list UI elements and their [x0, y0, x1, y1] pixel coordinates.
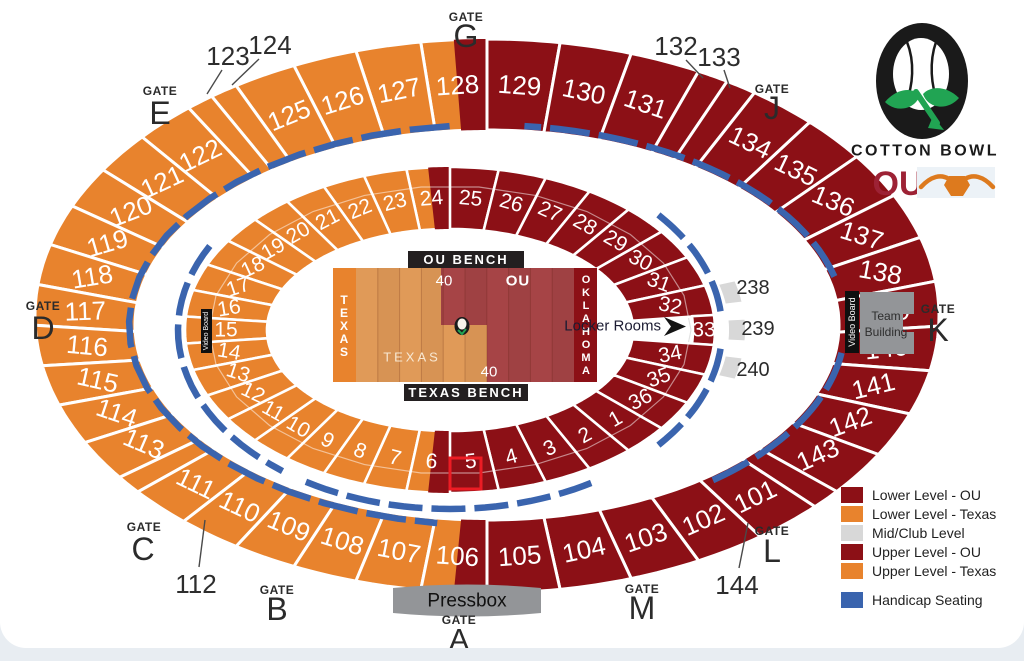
legend-label-3: Upper Level - OU	[872, 544, 981, 560]
section-label-33: 33	[692, 319, 715, 342]
legend-swatch-5	[841, 592, 863, 608]
section-label-106: 106	[435, 539, 480, 572]
section-label-5: 5	[464, 449, 478, 473]
section-label-6: 6	[425, 450, 439, 474]
locker-rooms-arrow-icon	[664, 317, 686, 336]
video-board-right-label: Video Board	[847, 297, 857, 346]
section-label-116: 116	[65, 329, 109, 363]
section-label-34: 34	[657, 341, 685, 368]
gate-J-letter: J	[764, 90, 780, 126]
gate-D-letter: D	[31, 310, 54, 346]
field-ou-label: OU	[506, 273, 531, 290]
gate-A-letter: A	[449, 624, 469, 649]
pressbox-label: Pressbox	[427, 591, 507, 612]
section-label-105: 105	[497, 539, 542, 572]
field-texas-label: TEXAS	[383, 350, 441, 365]
section-outside-label-144: 144	[715, 570, 758, 600]
section-outside-label-124: 124	[248, 30, 291, 60]
endzone-oklahoma-letter: A	[582, 365, 590, 377]
yard-40-top: 40	[436, 273, 453, 290]
legend-swatch-4	[841, 563, 863, 579]
legend-label-0: Lower Level - OU	[872, 487, 981, 503]
endzone-oklahoma-letter: O	[582, 274, 591, 286]
section-label-32: 32	[657, 292, 684, 319]
endzone-texas-letter: E	[340, 306, 348, 320]
cotton-bowl-title: COTTON BOWL	[851, 143, 999, 160]
ou-logo: OU	[873, 165, 924, 203]
legend-item-5: Handicap Seating	[841, 592, 996, 608]
legend-label-2: Mid/Club Level	[872, 525, 965, 541]
legend-item-3: Upper Level - OU	[841, 544, 996, 560]
legend-swatch-1	[841, 506, 863, 522]
gate-B-letter: B	[266, 591, 287, 627]
section-outside-label-132: 132	[654, 31, 697, 61]
section-outside-label-123: 123	[206, 41, 249, 71]
section-label-238: 238	[736, 277, 769, 299]
legend-item-2: Mid/Club Level	[841, 525, 996, 541]
gate-C-letter: C	[131, 531, 154, 567]
legend: Lower Level - OULower Level - TexasMid/C…	[841, 487, 996, 611]
endzone-oklahoma-letter: L	[583, 300, 590, 312]
legend-swatch-2	[841, 525, 863, 541]
team-building-label-1: Team	[871, 309, 900, 323]
endzone-texas-letter: S	[340, 345, 348, 359]
section-label-240: 240	[736, 359, 769, 381]
team-building-label-2: Building	[865, 325, 908, 339]
section-label-129: 129	[497, 69, 542, 102]
endzone-texas-letter: T	[340, 293, 348, 307]
legend-label-1: Lower Level - Texas	[872, 506, 996, 522]
gate-M-letter: M	[629, 590, 656, 626]
midfield-logo-boll	[458, 319, 467, 330]
section-label-25: 25	[458, 186, 483, 211]
endzone-texas-letter: X	[340, 319, 348, 333]
legend-item-4: Upper Level - Texas	[841, 563, 996, 579]
section-label-24: 24	[419, 186, 445, 211]
legend-swatch-0	[841, 487, 863, 503]
section-outside-label-133: 133	[697, 42, 740, 72]
ou-bench-label: OU BENCH	[423, 252, 508, 267]
gate-K-letter: K	[927, 312, 948, 348]
gate-G-letter: G	[454, 18, 479, 54]
gate-E-letter: E	[149, 95, 170, 131]
yard-stripe-1	[378, 268, 400, 382]
endzone-oklahoma-letter: K	[582, 287, 590, 299]
seating-chart-card: 1281271261251221211201191181171161151141…	[0, 0, 1024, 648]
video-board-left-label: Video Board	[203, 312, 210, 351]
yard-40-bottom: 40	[481, 364, 498, 381]
section-label-239: 239	[741, 318, 774, 340]
section-label-128: 128	[435, 69, 480, 102]
endzone-texas-letter: A	[340, 332, 349, 346]
legend-item-1: Lower Level - Texas	[841, 506, 996, 522]
section-outside-label-112: 112	[175, 569, 216, 599]
gate-L-letter: L	[763, 533, 781, 569]
legend-label-5: Handicap Seating	[872, 592, 983, 608]
section-label-117: 117	[64, 295, 107, 326]
section-label-15: 15	[214, 319, 237, 342]
legend-label-4: Upper Level - Texas	[872, 563, 996, 579]
endzone-oklahoma-letter: M	[581, 352, 590, 364]
legend-swatch-3	[841, 544, 863, 560]
texas-bench-label: TEXAS BENCH	[408, 385, 523, 400]
legend-item-0: Lower Level - OU	[841, 487, 996, 503]
section-pointer-line-123	[207, 70, 222, 94]
endzone-oklahoma-letter: O	[582, 339, 591, 351]
locker-rooms-label: Locker Rooms	[564, 318, 661, 335]
